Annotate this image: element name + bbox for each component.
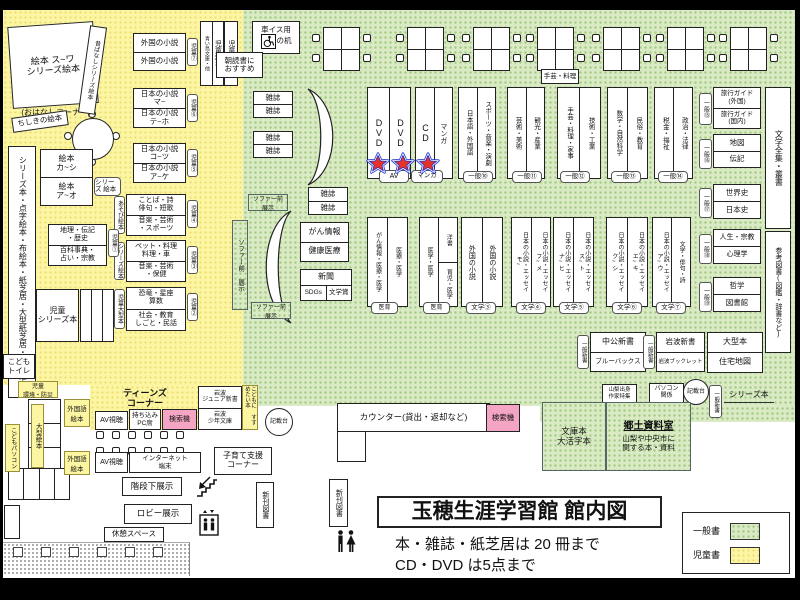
shelf-general-11: 芸術・美術 観光・産業: [507, 87, 545, 179]
new-books-shelf: 新刊図書: [329, 479, 348, 527]
literature-4-tag: 文学④: [516, 302, 546, 314]
chair: [312, 54, 320, 62]
elevator-icon: [199, 509, 219, 536]
shelf-cell: 健康医療: [301, 242, 348, 262]
kids-pc-label: こどもパソコン: [5, 424, 20, 472]
rest-seat: [97, 547, 107, 557]
shelf-cell: 世界史: [714, 185, 760, 201]
shelf-philosophy-library: 哲学 図書館: [713, 277, 761, 312]
shelf-column: がん情報・医療・医学: [368, 218, 387, 306]
general-13-tag: 一般⑬: [611, 171, 641, 183]
shelf-cell: 岩波ブックレット: [657, 352, 704, 372]
foreign-ehon-label: 外国語 絵本: [64, 399, 90, 427]
sofa-front-display-label: ソファー前 展示: [251, 302, 291, 319]
yosho-cell: 洋書: [439, 218, 457, 262]
shelf-jp-essay-na: 日本の小説・エッセイ ナ~ヒ 日本の小説・エッセイ ス~ト: [553, 217, 594, 307]
general-14-tag: 一般⑭: [658, 171, 688, 183]
reading-table: [407, 27, 444, 71]
rest-seat: [41, 547, 51, 557]
star-icon: [366, 152, 390, 174]
shelf-jp-essay-ku: 日本の小説・エッセイ ク~シ 日本の小説・エッセイ エ~キ: [606, 217, 648, 307]
shelf-cell: 雑誌: [254, 132, 292, 144]
general-11-tag: 一般⑪: [512, 171, 542, 183]
shelf-cell: 新聞: [301, 270, 351, 285]
literature-5-tag: 文学⑤: [559, 302, 589, 314]
bench: [39, 469, 54, 499]
shelf-column: 医学・医学: [420, 218, 438, 306]
side-tag-jido-ogata: 児童大型本: [114, 289, 125, 329]
shelf-cell: [81, 290, 91, 341]
shelf-column: スポーツ・音楽・演劇: [477, 88, 496, 178]
chair: [719, 34, 727, 42]
local-history-room: 郷土資料室 山梨や中央市に 関する本・資料: [606, 402, 691, 471]
shelf-column: 日本の小説・エッセイ モ~: [512, 218, 531, 306]
side-tag-series-ehon: シリーズ 絵本: [94, 177, 121, 196]
chair: [770, 34, 778, 42]
map-canvas: 絵本 ス~ワ シリーズ絵本 (おはなしコーナー) 昔ばなしシリーズ絵本 ちしきの…: [3, 10, 795, 578]
chair: [513, 34, 521, 42]
chair: [363, 54, 371, 62]
general-19-tag: 一般⑲: [699, 282, 712, 312]
shelf-jp-novels-ma: 日本の小説 マ~ 日本の小説 テ~ホ: [133, 88, 186, 128]
shelf-world-japan-history: 世界史 日本史: [713, 184, 761, 219]
shelf-column: 外国の小説: [482, 218, 503, 306]
shelf-medical-a: がん情報・医療・医学 医療・医学: [367, 217, 408, 307]
av-viewing-seat: AV視聴: [95, 452, 128, 473]
teens-seat: [176, 431, 184, 439]
shelf-ehon-ka-o: 絵本 カ~シ 絵本 ア~オ: [40, 149, 93, 206]
shelf-cell: 絵本 ア~オ: [41, 177, 92, 205]
shelf-cell: 中公新書: [591, 333, 645, 352]
rest-seat: [13, 547, 23, 557]
shelf-cell: 日本の小説 テ~ホ: [134, 108, 185, 128]
shelf-cell: 図書館: [714, 294, 760, 311]
shinsho-tag: 一般新書: [709, 385, 722, 418]
shelf-iwanami-junior: 岩波 ジュニア新書 岩波 少年文庫: [198, 386, 242, 430]
general-16-tag: 一般⑯: [699, 139, 712, 169]
shelf-jido-series: 児童 シリーズ本: [36, 289, 79, 342]
bunko-large-print-room: 文庫本 大活字本: [542, 402, 606, 471]
shelf-cell: 恐竜・星座 算数: [127, 288, 185, 309]
search-terminal: 検索機: [162, 409, 197, 430]
sdgs-label: SDGs: [301, 286, 327, 301]
chair: [462, 34, 470, 42]
chair: [513, 54, 521, 62]
shelf-column: 日本語・外国語: [459, 88, 477, 178]
chair: [577, 54, 585, 62]
service-counter-leg: [337, 431, 366, 462]
shelf-column-split: 洋書 育児・医学: [438, 218, 457, 306]
shelf-column: 芸術・美術: [508, 88, 526, 178]
teens-seat: [144, 431, 152, 439]
shelf-general-12: 手芸・料理・家事 技術・工業: [557, 87, 601, 179]
shelf-cell: 音楽・芸術 ・スポーツ: [127, 215, 185, 236]
shelf-cell: 地図: [714, 135, 760, 151]
shelf-iwanami-shinsho: 岩波新書 岩波ブックレット: [656, 332, 705, 372]
shelf-newspaper: 新聞 SDGs 文学賞: [300, 269, 352, 301]
shelf-large-books: 大型本 住宅地図: [707, 332, 763, 373]
reading-table: [537, 27, 574, 71]
shelf-cell: 社会・教育 しごと・民話: [127, 309, 185, 331]
reading-table: [603, 27, 640, 71]
shelf-cell: 雑誌: [254, 104, 292, 117]
general-18-tag: 一般⑱: [699, 234, 712, 264]
shelf-general-10: 日本語・外国語 スポーツ・音楽・演劇: [458, 87, 496, 179]
bench: [23, 469, 38, 499]
ikuji-cell: 育児・医学: [439, 262, 457, 307]
teens-seat: [160, 431, 168, 439]
magazine-rack: 雑誌雑誌: [253, 131, 293, 158]
chair: [396, 54, 404, 62]
general-17-tag: 一般⑰: [699, 188, 712, 218]
shelf-cell: SDGs 文学賞: [301, 285, 351, 301]
shelf-tag-jido6: 児童⑥: [187, 94, 198, 122]
chair: [770, 54, 778, 62]
shelf-column: 医療・医学: [387, 218, 407, 306]
library-floor-map: { "title": { "main": "玉穂生涯学習館 館内図", "rul…: [0, 0, 800, 600]
map-title: 玉穂生涯学習館 館内図: [377, 496, 662, 528]
av-viewing-seat: AV視聴: [95, 411, 128, 430]
shelf-column: 文学・俳句・詩: [671, 218, 690, 306]
chair: [577, 34, 585, 42]
kyodo-description: 山梨や中央市に 関する本・資料: [622, 435, 675, 452]
rest-seat: [125, 547, 135, 557]
shelf-column: 日本の小説・エッセイ ク~シ: [607, 218, 627, 306]
shelf-cell: 音楽・芸術 ・保健: [127, 261, 185, 282]
shelf-column: 技術・工業: [579, 88, 601, 178]
chair: [643, 54, 651, 62]
shelf-column: 政治・法律: [673, 88, 692, 178]
shelf-column: 税金・福祉: [655, 88, 673, 178]
chair: [526, 34, 534, 42]
chair: [719, 54, 727, 62]
shelf-medical-b: 医学・医学 洋書 育児・医学: [419, 217, 458, 307]
internet-terminal: インターネット 端末: [129, 452, 201, 473]
service-counter: カウンター(貸出・返却など): [337, 403, 490, 432]
teens-seat: [128, 431, 136, 439]
legend-row-general: 一般書: [693, 523, 760, 540]
chair: [592, 54, 600, 62]
wheelchair-desk: 車イス用 の机: [252, 21, 300, 54]
shelf-jp-essay-mo: 日本の小説・エッセイ モ~ 日本の小説・エッセイ フ~メ: [511, 217, 551, 307]
reading-table: [730, 27, 767, 71]
shelf-chuko-shinsho: 中公新書 ブルーバックス: [590, 332, 646, 372]
chair: [526, 54, 534, 62]
wheelchair-desk-line1: 車イス用: [261, 26, 291, 34]
shelf-tag-jido5: 児童⑤: [187, 149, 198, 177]
shelf-column: 日本の小説・エッセイ ナ~ヒ: [554, 218, 573, 306]
shelf-cell: 外国の小説: [134, 52, 185, 71]
shelf-label: 絵本 ス~ワ シリーズ絵本: [26, 53, 81, 77]
lending-rule-1: 本・雑誌・紙芝居は 20 冊まで: [395, 533, 600, 554]
general-12-tag: 一般⑫: [560, 171, 590, 183]
shelf-cell: 岩波新書: [657, 333, 704, 352]
rest-seat: [69, 547, 79, 557]
asadoku-recommend-label: 朝読書に おすすめ: [216, 52, 263, 78]
rest-space-label: 休憩スペース: [104, 527, 164, 542]
lending-rule-2: CD・DVD は5点まで: [395, 554, 536, 575]
toilet-icon: [335, 529, 357, 556]
bungakusho-label: 文学賞: [327, 289, 352, 296]
shinsho-tag: 一般新書: [643, 335, 655, 369]
shelf-column: 観光・産業: [526, 88, 545, 178]
shelf-cell: 絵本 カ~シ: [41, 150, 92, 177]
chair: [707, 34, 715, 42]
teens-seat: [96, 431, 104, 439]
shelf-cell: ことば・詩 俳句・短歌: [127, 195, 185, 215]
shelf-cell: ブルーバックス: [591, 352, 645, 372]
small-cabinet: [4, 505, 20, 539]
kyodo-title: 郷土資料室: [624, 421, 674, 432]
shelf-cell: [102, 290, 113, 341]
chair: [312, 34, 320, 42]
chair: [64, 132, 72, 140]
shelf-travel-guide: 旅行ガイド (外国) 旅行ガイド (国内): [713, 87, 761, 129]
shelf-cell: 岩波 ジュニア新書: [199, 387, 241, 408]
shelf-kotoba-poetry: ことば・詩 俳句・短歌 音楽・芸術 ・スポーツ: [126, 194, 186, 236]
new-books-shelf: 新刊図書: [256, 482, 274, 528]
craft-cooking-note: 手芸・料理: [541, 69, 579, 84]
reading-table: [667, 27, 704, 71]
series-books-label: シリーズ本: [724, 389, 774, 403]
shelf-tag-jido7: 児童⑦: [187, 38, 198, 66]
shelf-column: 日本の小説・エッセイ フ~メ: [531, 218, 551, 306]
shelf-column: 日本の小説・エッセイ エ~キ: [627, 218, 648, 306]
writing-stand: 記載台: [265, 408, 293, 436]
shelf-cell: 雑誌: [309, 188, 347, 201]
star-icon: [416, 152, 440, 174]
ogata-ehon-label: 大型絵本: [31, 404, 44, 468]
shelf-cell: 住宅地図: [708, 352, 762, 372]
shelf-cell: 雑誌: [309, 201, 347, 215]
chair: [447, 54, 455, 62]
shelf-column: 外国の小説: [462, 218, 482, 306]
medical-tag: 医育: [423, 302, 450, 314]
legend: 一般書 児童書: [682, 512, 790, 574]
shelf-cell: 外国の小説: [134, 34, 185, 52]
shelf-column: 日本の小説・エッセイ ア~ウ: [653, 218, 671, 306]
wheelchair-icon: [261, 34, 276, 49]
chair: [643, 34, 651, 42]
rest-seat: [153, 547, 163, 557]
shelf-literature-collection: 文学全集・叢書: [765, 87, 791, 229]
chair: [707, 54, 715, 62]
shelf-cell: 日本史: [714, 201, 760, 218]
shelf-cell: ペット・料理 料理・車: [127, 241, 185, 261]
foreign-ehon-label: 外国語 絵本: [64, 451, 90, 475]
sofa-front-display-label: ソファー前 展示: [248, 194, 288, 211]
shelf-reference-books: 参考図書(図鑑・辞書など): [765, 231, 791, 353]
shelf-cell: 雑誌: [254, 144, 292, 157]
chair: [592, 34, 600, 42]
yamanashi-authors-label: 山梨出身 作家特集: [602, 384, 637, 403]
empty-shelf: [80, 289, 114, 342]
sofa-front-display-label: ソファー前 展示: [232, 220, 248, 310]
shelf-cell: 岩波 少年文庫: [199, 408, 241, 430]
teens-seat: [112, 431, 120, 439]
sofa-crescent: [305, 86, 349, 188]
shelf-dinosaur-math: 恐竜・星座 算数 社会・教育 しごと・民話: [126, 287, 186, 331]
general-10-tag: 一般⑩: [463, 171, 493, 183]
chair: [656, 34, 664, 42]
legend-general-label: 一般書: [693, 526, 720, 536]
reading-table: [473, 27, 510, 71]
shelf-general-14: 税金・福祉 政治・法律: [654, 87, 693, 179]
medical-tag: 医育: [371, 302, 398, 314]
literature-7-tag: 文学⑦: [656, 302, 686, 314]
shelf-cell: 心理学: [714, 246, 760, 263]
shelf-pet-cooking: ペット・料理 料理・車 音楽・芸術 ・保健: [126, 240, 186, 282]
shelf-cell: 地理・伝記 ・歴史: [49, 225, 106, 245]
shelf-cell: 人生・宗教: [714, 230, 760, 246]
legend-children-swatch: [730, 547, 760, 564]
shelf-tag-jido3: 児童③: [187, 246, 198, 274]
pc-related-label: パソコン 関係: [649, 383, 684, 403]
reading-table: [323, 27, 360, 71]
legend-children-label: 児童書: [693, 550, 720, 560]
chair: [462, 54, 470, 62]
literature-3-tag: 文学③: [466, 302, 496, 314]
magazine-rack: 雑誌雑誌: [308, 187, 348, 215]
shelf-column: 日本の小説・エッセイ ス~ト: [573, 218, 593, 306]
wheelchair-desk-line2: の机: [261, 34, 292, 49]
shelf-life-religion: 人生・宗教 心理学: [713, 229, 761, 264]
literature-6-tag: 文学⑥: [612, 302, 642, 314]
shelf-cell: 雑誌: [254, 92, 292, 104]
shelf-column: 数学・自然科学: [608, 88, 627, 178]
star-icon: [391, 152, 415, 174]
shelf-tag-jido2: 児童②: [187, 293, 198, 321]
shelf-cell: がん情報: [301, 223, 348, 242]
shelf-general-13: 数学・自然科学 民俗・教育: [607, 87, 648, 179]
bench: [9, 469, 23, 499]
shelf-cell: 旅行ガイド (外国): [714, 88, 760, 108]
chair: [363, 34, 371, 42]
side-note-aoitori: 青い鳥文庫・他: [201, 22, 212, 85]
shelf-cell: 日本の小説 ア~ケ: [134, 163, 185, 183]
legend-row-children: 児童書: [693, 547, 760, 564]
teens-corner-title: ティーンズ コーナー: [92, 386, 198, 410]
bench-row: [8, 468, 70, 500]
kids-environment-label: 児童 環境・防災: [18, 381, 58, 398]
shinsho-tag: 一般新書: [577, 335, 589, 369]
chair: [447, 34, 455, 42]
shelf-jp-novels-ko: 日本の小説 コ~ツ 日本の小説 ア~ケ: [133, 143, 186, 183]
shelf-map-biography: 地図 伝記: [713, 134, 761, 168]
search-terminal: 検索機: [486, 404, 520, 432]
chair: [656, 54, 664, 62]
shelf-cell: 日本の小説 コ~ツ: [134, 144, 185, 163]
shelf-foreign-novels-kids: 外国の小説 外国の小説: [133, 33, 186, 71]
shelf-column: 民俗・教育: [627, 88, 647, 178]
shelf-cell: 大型本: [708, 333, 762, 352]
childcare-support-corner: 子育て支援 コーナー: [214, 447, 272, 475]
shelf-cell: 百科事典・ 占い・宗教: [49, 245, 106, 266]
lobby-display: ロビー展示: [124, 504, 192, 524]
shelf-cell: 伝記: [714, 151, 760, 168]
shelf-tag-jido1: 児童①: [108, 229, 119, 257]
shelf-cancer-health: がん情報 健康医療: [300, 222, 349, 262]
shelf-column: 手芸・料理・家事: [558, 88, 579, 178]
recommend-kids-label: こどもに すすめたい本: [242, 385, 258, 430]
kids-toilet: こども トイレ: [3, 354, 35, 379]
shelf-cell: 日本の小説 マ~: [134, 89, 185, 108]
byod-pc-seat: 持ち込み PC席: [129, 409, 161, 430]
general-15-tag: 一般⑮: [699, 93, 712, 125]
legend-general-swatch: [730, 523, 760, 540]
magazine-rack: 雑誌雑誌: [253, 91, 293, 118]
shelf-jp-essay-a: 日本の小説・エッセイ ア~ウ 文学・俳句・詩: [652, 217, 691, 307]
shelf-geography-history: 地理・伝記 ・歴史 百科事典・ 占い・宗教: [48, 224, 107, 266]
shelf-cell: [91, 290, 102, 341]
shelf-foreign-novels: 外国の小説 外国の小説: [461, 217, 503, 307]
under-stairs-display: 階段下展示: [122, 477, 182, 496]
shelf-cell: 旅行ガイド (国内): [714, 108, 760, 129]
stairs-icon: [195, 474, 219, 498]
shelf-cell: 哲学: [714, 278, 760, 294]
shelf-tag-jido4: 児童④: [187, 200, 198, 228]
chair: [396, 34, 404, 42]
